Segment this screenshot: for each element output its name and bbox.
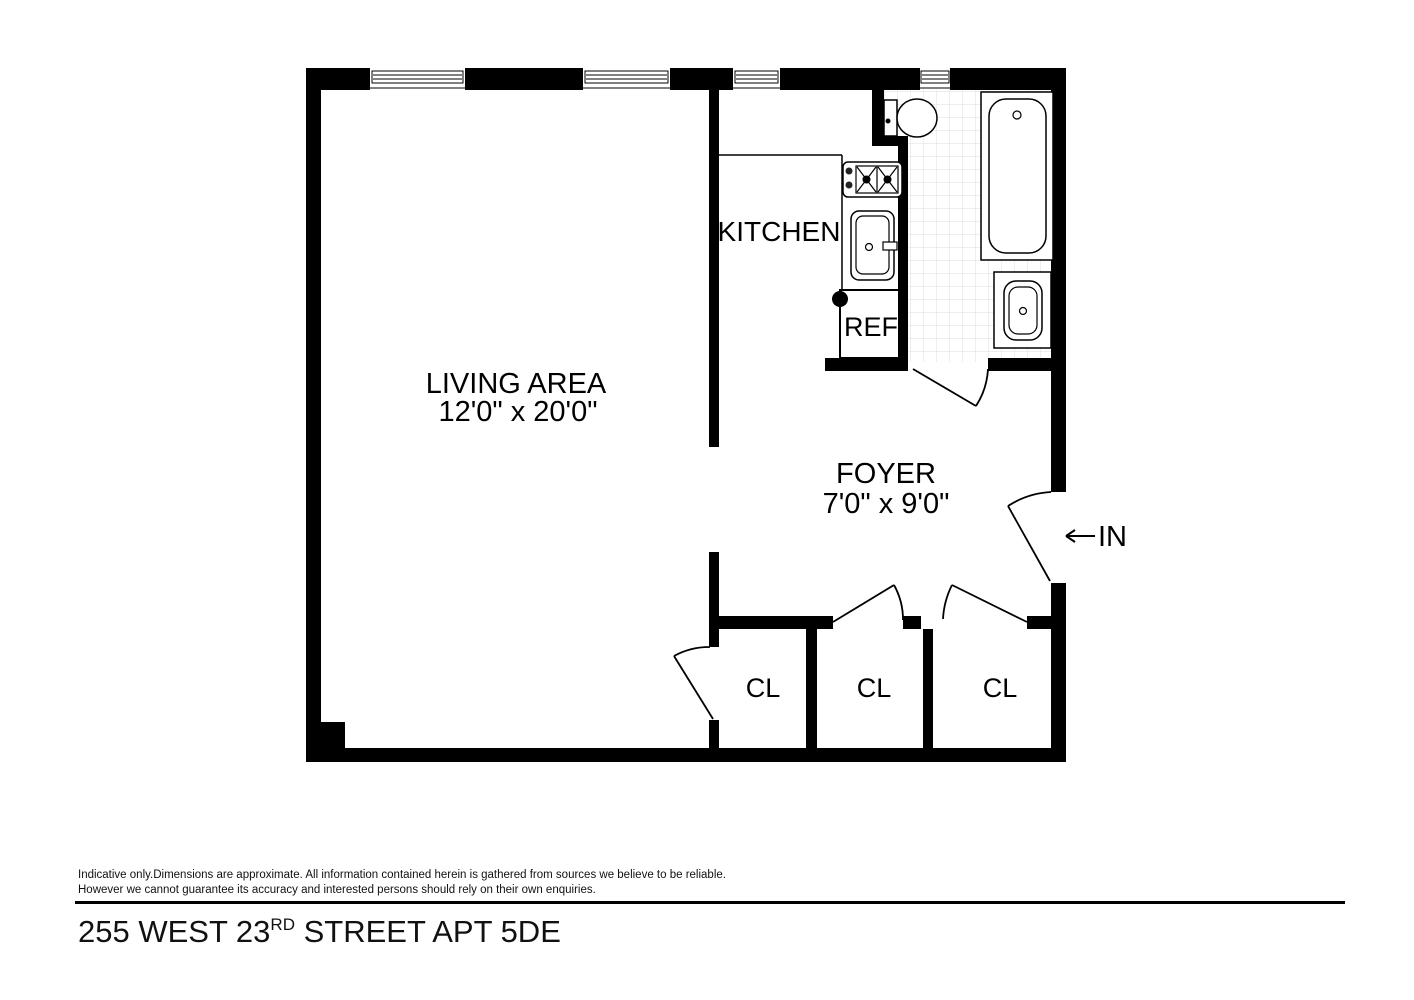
- kitchen-label: KITCHEN: [718, 216, 841, 247]
- right-wall-lower: [1051, 583, 1066, 762]
- refrigerator: REF: [832, 290, 899, 358]
- doors: [674, 369, 1051, 719]
- bathtub-icon: [981, 92, 1053, 260]
- footer: Indicative only.Dimensions are approxima…: [78, 868, 1358, 898]
- left-wall: [306, 68, 321, 762]
- closet-door-swing: [943, 585, 1027, 622]
- closet-label: CL: [983, 673, 1018, 703]
- top-wall-seg: [950, 68, 1066, 90]
- top-wall-seg: [465, 68, 583, 90]
- page-title: 255 WEST 23RD STREET APT 5DE: [78, 914, 561, 950]
- refrigerator-handle: [832, 291, 848, 307]
- living-wall-mid: [709, 552, 719, 647]
- closet-divider: [923, 629, 933, 748]
- top-wall-seg: [670, 68, 733, 90]
- left-arrow-icon: [1066, 530, 1095, 542]
- title-suffix: STREET APT 5DE: [295, 914, 561, 949]
- closet-label: CL: [746, 673, 781, 703]
- corner-column: [321, 722, 345, 748]
- living-wall-lower: [709, 720, 719, 748]
- entrance-arrow: IN: [1066, 521, 1127, 553]
- closet-top-wall-right: [1027, 616, 1053, 629]
- title-prefix: 255 WEST 23: [78, 914, 270, 949]
- disclaimer-line-2: However we cannot guarantee its accuracy…: [78, 883, 1358, 898]
- window-icon: [583, 68, 670, 90]
- footer-divider: [75, 901, 1345, 904]
- closet-door-swing: [674, 647, 713, 719]
- kitchen-sink-icon: [851, 211, 897, 280]
- floor-plan-drawing: REF: [0, 0, 1414, 860]
- disclaimer-line-1: Indicative only.Dimensions are approxima…: [78, 868, 1358, 883]
- closet-divider: [806, 616, 817, 748]
- closet-label: CL: [857, 673, 892, 703]
- window-icon: [733, 68, 780, 90]
- entry-door-swing: [1008, 492, 1051, 581]
- foyer-label: FOYER: [836, 458, 936, 490]
- top-wall-seg: [780, 68, 920, 90]
- stove-icon: [843, 162, 902, 197]
- toilet-nook-wall-vertical: [872, 90, 884, 143]
- kitchen-bottom-wall: [825, 358, 908, 371]
- foyer-dimensions: 7'0" x 9'0": [823, 488, 950, 520]
- title-ordinal-superscript: RD: [270, 915, 295, 934]
- floor-plan-page: { "page": { "background": "#ffffff", "wa…: [0, 0, 1414, 1000]
- closet-top-stub: [903, 616, 921, 629]
- bathroom-sink-icon: [994, 272, 1051, 348]
- living-area-dimensions: 12'0" x 20'0": [438, 396, 597, 428]
- window-icon: [370, 68, 465, 90]
- closet-door-swing: [833, 585, 903, 622]
- living-wall-upper: [709, 90, 719, 447]
- bottom-wall: [306, 748, 1066, 762]
- toilet-icon: [884, 99, 937, 137]
- bathroom-door-swing: [913, 369, 988, 406]
- window-icon: [920, 68, 950, 90]
- entrance-label: IN: [1098, 521, 1127, 553]
- bathroom-bottom-wall: [988, 358, 1066, 371]
- refrigerator-label: REF: [844, 312, 898, 342]
